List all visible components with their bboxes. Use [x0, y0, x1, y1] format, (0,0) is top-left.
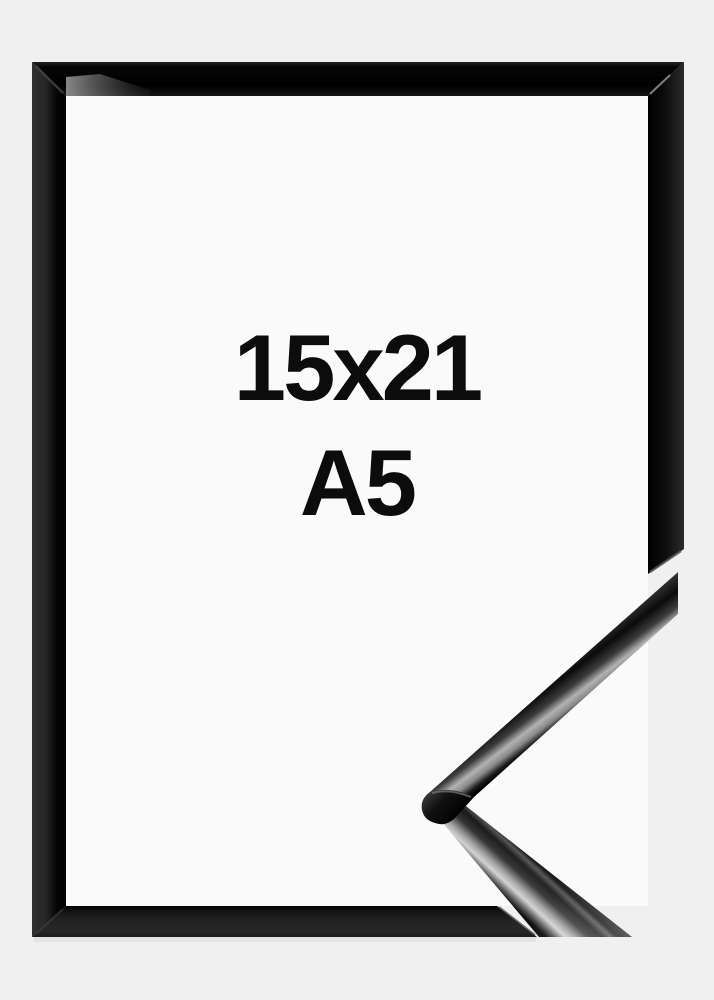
frame-right-bar [648, 62, 684, 574]
product-image: 15x21 A5 [0, 0, 714, 1000]
frame-left-bar [32, 62, 66, 937]
size-label-block: 15x21 A5 [66, 310, 648, 540]
size-dimensions-text: 15x21 [66, 310, 648, 425]
frame-bottom-bar [32, 906, 537, 937]
size-format-text: A5 [66, 425, 648, 540]
